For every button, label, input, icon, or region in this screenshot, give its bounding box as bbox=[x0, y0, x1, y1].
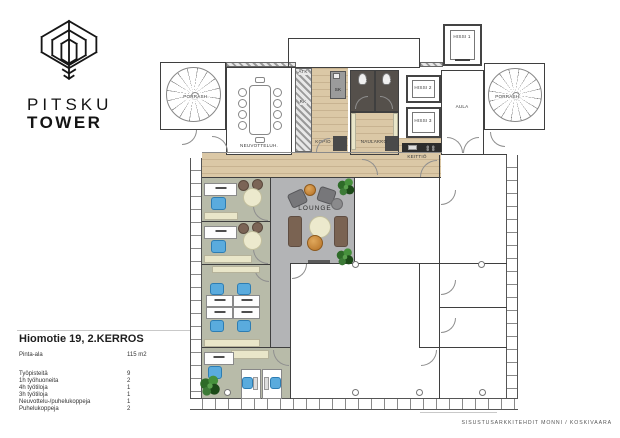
meeting-end-seat bbox=[255, 77, 265, 83]
wall-aula-to-facade bbox=[441, 154, 507, 155]
plant-icon bbox=[197, 374, 223, 400]
stat-row: 3h työtiloja 1 bbox=[19, 392, 179, 398]
area-row: Pinta-ala 115 m2 bbox=[19, 352, 179, 358]
stat-value: 9 bbox=[127, 371, 130, 377]
office-chair bbox=[270, 377, 281, 389]
desk bbox=[204, 226, 237, 239]
office-chair bbox=[237, 283, 251, 295]
lounge-sofa bbox=[334, 216, 348, 247]
stat-value: 1 bbox=[127, 399, 130, 405]
coat-bench bbox=[351, 113, 356, 150]
column-symbol bbox=[352, 261, 359, 268]
area-value: 115 m2 bbox=[127, 352, 147, 358]
desk bbox=[206, 307, 233, 319]
room-label-hissi3: HISSI 3 bbox=[414, 119, 431, 124]
sk-sink bbox=[333, 73, 340, 79]
stat-row: Työpisteitä 9 bbox=[19, 371, 179, 377]
door-arc bbox=[182, 130, 197, 145]
lounge-sofa bbox=[288, 216, 302, 247]
wall-band bbox=[420, 62, 443, 67]
stat-label: Neuvottelu-/puhelukoppeja bbox=[19, 399, 127, 405]
stat-row: 1h työhuoneita 2 bbox=[19, 378, 179, 384]
office-chair bbox=[211, 197, 226, 210]
wall-c-d bbox=[202, 347, 290, 348]
stat-value: 1 bbox=[127, 392, 130, 398]
sideboard bbox=[204, 255, 252, 263]
door-arc bbox=[490, 132, 505, 147]
desk bbox=[206, 295, 233, 307]
office-chair bbox=[210, 320, 224, 332]
meeting-chair bbox=[273, 99, 282, 108]
closet-label-sk: SK bbox=[335, 88, 342, 93]
stat-row: 4h työtiloja 1 bbox=[19, 385, 179, 391]
media-bench bbox=[308, 260, 330, 263]
column-symbol bbox=[352, 389, 359, 396]
stat-label: 1h työhuoneita bbox=[19, 378, 127, 384]
corridor-floor bbox=[202, 152, 441, 178]
round-table bbox=[243, 188, 262, 207]
stool bbox=[224, 389, 231, 396]
kitchen-sink bbox=[408, 145, 417, 150]
meeting-chair bbox=[238, 88, 247, 97]
wall-offices-lounge bbox=[270, 178, 271, 348]
skylight bbox=[288, 38, 420, 68]
atk-cabinet bbox=[295, 68, 312, 152]
logo-text-tower: TOWER bbox=[27, 114, 102, 131]
door-arc bbox=[441, 280, 456, 295]
wall-right-col-1 bbox=[440, 263, 507, 264]
desk bbox=[233, 307, 260, 319]
room-label-keittio: KEITTIÖ bbox=[407, 155, 426, 160]
stat-label: Puhelukoppeja bbox=[19, 406, 127, 412]
stat-label: 3h työtiloja bbox=[19, 392, 127, 398]
column-symbol bbox=[478, 261, 485, 268]
room-label-porras-left: PORRASH. bbox=[183, 95, 209, 100]
stat-row: Neuvottelu-/puhelukoppeja 1 bbox=[19, 399, 179, 405]
cabinet bbox=[212, 266, 260, 273]
closet-label-atk: ATK bbox=[298, 70, 307, 75]
lounge-corridor-floor bbox=[270, 263, 290, 348]
room-label-aula: AULA bbox=[456, 105, 469, 110]
door-arc bbox=[441, 318, 456, 333]
facade-right bbox=[506, 155, 518, 398]
logo-text-pitsku: PITSKU bbox=[27, 96, 112, 113]
wc-naulakko-wall bbox=[350, 111, 399, 113]
meeting-chair bbox=[238, 121, 247, 130]
round-table bbox=[243, 231, 262, 250]
stat-value: 1 bbox=[127, 385, 130, 391]
wall-right-col-2 bbox=[440, 307, 507, 308]
meeting-table bbox=[249, 85, 271, 135]
room-label-hissi1: HISSI 1 bbox=[453, 35, 470, 40]
desk bbox=[233, 295, 260, 307]
wall-strip-right bbox=[290, 263, 291, 399]
column-symbol bbox=[479, 389, 486, 396]
room-label-hissi2: HISSI 2 bbox=[414, 86, 431, 91]
room-label-porras-right: PORRASH. bbox=[495, 95, 521, 100]
floor-plan-page: { "logo": { "line1": "PITSKU", "line2": … bbox=[0, 0, 620, 438]
architect-credit: SISUSTUSARKKITEHDIT MONNI / KOSKIVAARA bbox=[430, 420, 612, 426]
credit-divider bbox=[420, 412, 497, 413]
room-label-naulakko: NAULAKKO bbox=[361, 140, 388, 145]
pouf bbox=[304, 184, 316, 196]
room-label-neuvottelu: NEUVOTTELUH. bbox=[240, 144, 278, 149]
cabinet bbox=[231, 350, 269, 359]
page-title: Hiomotie 19, 2.KERROS bbox=[19, 333, 144, 345]
facade-bottom bbox=[190, 398, 518, 410]
wall-y263 bbox=[290, 263, 440, 264]
stat-value: 2 bbox=[127, 378, 130, 384]
booth-desk bbox=[264, 377, 269, 390]
desk bbox=[204, 352, 234, 365]
room-label-lounge: LOUNGE bbox=[298, 206, 331, 213]
wall-b-c bbox=[202, 264, 270, 265]
meeting-chair bbox=[273, 110, 282, 119]
desk bbox=[204, 183, 237, 196]
doormat bbox=[333, 136, 347, 151]
office-chair bbox=[237, 320, 251, 332]
office-chair bbox=[242, 377, 253, 389]
corridor-south-wall bbox=[202, 177, 441, 178]
pitsku-tower-logo-icon bbox=[30, 18, 108, 94]
info-divider bbox=[17, 330, 190, 331]
booth-desk bbox=[253, 377, 258, 390]
stat-value: 2 bbox=[127, 406, 130, 412]
corridor-north-wall bbox=[202, 152, 442, 153]
stat-label: Työpisteitä bbox=[19, 371, 127, 377]
meeting-chair bbox=[238, 99, 247, 108]
cabinet bbox=[204, 339, 260, 347]
plant-icon bbox=[335, 177, 357, 199]
lounge-low-table bbox=[307, 235, 323, 251]
stat-label: 4h työtiloja bbox=[19, 385, 127, 391]
area-label: Pinta-ala bbox=[19, 352, 127, 358]
door-arc bbox=[292, 264, 307, 279]
column-symbol bbox=[416, 389, 423, 396]
meeting-chair bbox=[273, 88, 282, 97]
door-arc bbox=[441, 190, 456, 205]
door-arc bbox=[421, 350, 437, 366]
office-chair bbox=[210, 283, 224, 295]
office-chair bbox=[211, 240, 226, 253]
elevator-1-door bbox=[455, 59, 470, 61]
pouf bbox=[331, 198, 343, 210]
wc-divider-wall bbox=[374, 70, 376, 112]
cooktop bbox=[425, 145, 436, 151]
wall-x420 bbox=[419, 263, 420, 348]
sideboard bbox=[204, 212, 238, 220]
facade-left bbox=[190, 158, 202, 399]
wall-y348 bbox=[419, 347, 507, 348]
meeting-chair bbox=[273, 121, 282, 130]
stat-row: Puhelukoppeja 2 bbox=[19, 406, 179, 412]
closet-label-rk: RK bbox=[300, 100, 307, 105]
meeting-chair bbox=[238, 110, 247, 119]
